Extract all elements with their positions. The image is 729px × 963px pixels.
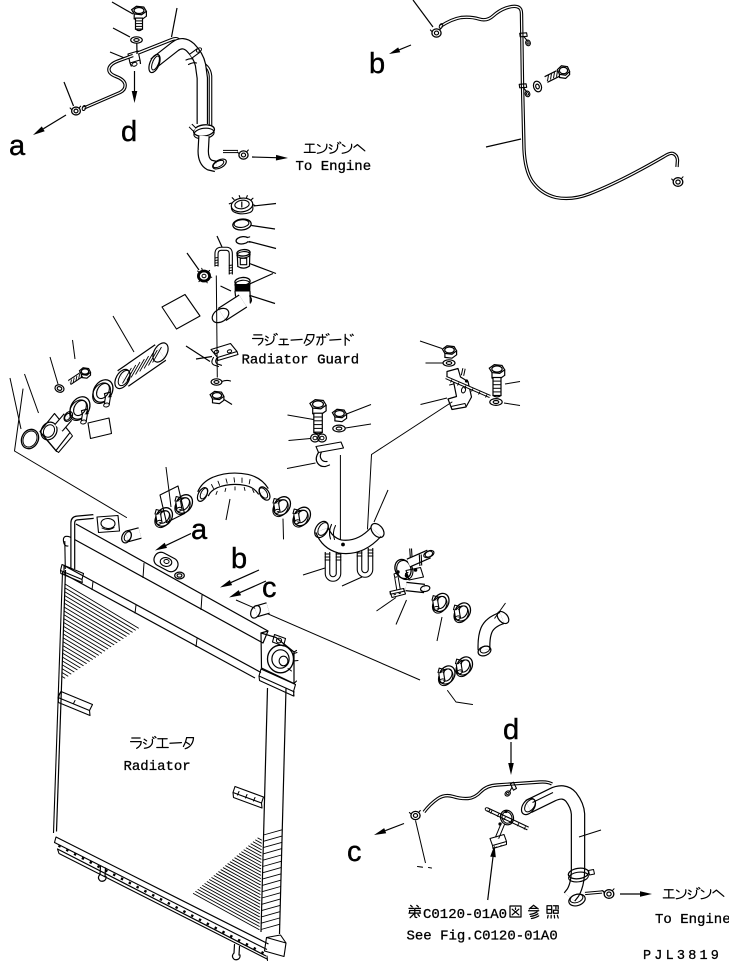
svg-text:b: b <box>369 48 385 80</box>
svg-text:Radiator: Radiator <box>124 759 191 775</box>
svg-text:Radiator Guard: Radiator Guard <box>242 353 360 369</box>
svg-text:d: d <box>121 116 137 148</box>
svg-text:c: c <box>262 572 277 604</box>
svg-text:PJL3819: PJL3819 <box>643 949 722 963</box>
svg-text:a: a <box>191 514 208 546</box>
svg-text:To Engine: To Engine <box>655 912 729 928</box>
svg-text:To Engine: To Engine <box>296 159 372 175</box>
svg-text:a: a <box>9 130 26 162</box>
svg-text:b: b <box>231 543 247 575</box>
svg-text:C0120-01A0: C0120-01A0 <box>423 907 507 923</box>
svg-text:See Fig.C0120-01A0: See Fig.C0120-01A0 <box>407 929 558 945</box>
svg-text:d: d <box>503 714 519 746</box>
svg-text:c: c <box>347 836 362 868</box>
